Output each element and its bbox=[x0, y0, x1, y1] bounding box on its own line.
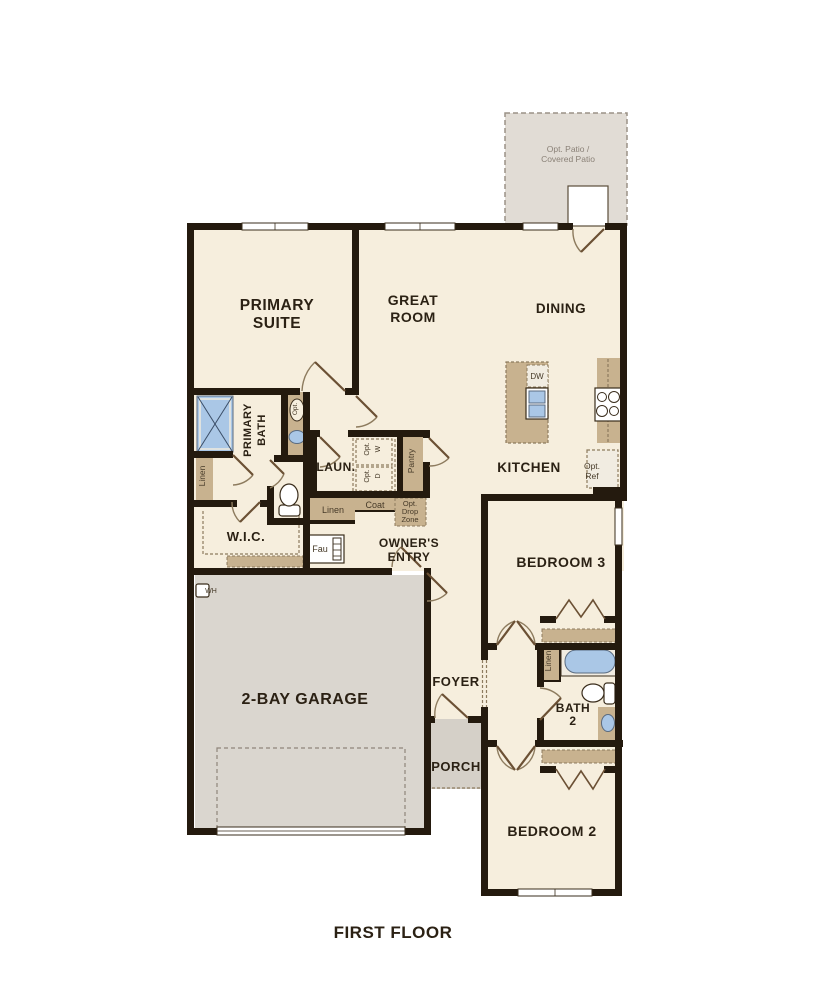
patio-floor bbox=[505, 113, 627, 225]
plan-title: FIRST FLOOR bbox=[334, 923, 453, 942]
bedroom2-label: BEDROOM 2 bbox=[507, 823, 596, 839]
linen-primary-label: Linen bbox=[197, 465, 207, 486]
wall-wing-top bbox=[481, 494, 627, 501]
opt-w-label-2: W bbox=[375, 445, 382, 452]
patio-step bbox=[568, 186, 608, 226]
pantry-label: Pantry bbox=[406, 448, 416, 473]
wic-label: W.I.C. bbox=[227, 529, 265, 544]
dining-label: DINING bbox=[536, 301, 586, 316]
opt-ref-label-1: Opt. bbox=[584, 461, 600, 471]
wall-closet3-front-b bbox=[604, 616, 619, 623]
wall-suite-divider bbox=[352, 223, 359, 395]
bedroom2-closet-shelf bbox=[542, 750, 618, 763]
opt-ref-label-2: Ref bbox=[585, 471, 599, 481]
wall-wing-bottom-b bbox=[592, 889, 622, 896]
wall-wc-right bbox=[303, 392, 310, 525]
opt-vanity-label: Opt. bbox=[292, 403, 299, 415]
wall-below-shower bbox=[187, 451, 233, 458]
wall-wing-right-a bbox=[615, 501, 622, 508]
foyer-label: FOYER bbox=[432, 674, 479, 689]
dw-label: DW bbox=[530, 372, 544, 381]
wall-b3-south-b bbox=[535, 643, 619, 650]
wall-garage-right bbox=[424, 568, 431, 835]
wall-closet3-front-a bbox=[540, 616, 556, 623]
wall-wing-left-a bbox=[481, 494, 488, 660]
tub bbox=[565, 650, 615, 673]
wall-bath2-b2-a bbox=[481, 740, 497, 747]
bath2-toilet-bowl bbox=[582, 684, 604, 702]
porch-label: PORCH bbox=[431, 759, 480, 774]
wall-left bbox=[187, 223, 194, 835]
wall-wing-bottom-a bbox=[481, 889, 518, 896]
kitchen-sink-a bbox=[529, 391, 545, 403]
opt-d-label-1: Opt. bbox=[364, 469, 371, 482]
wall-foyer-bottom-a bbox=[427, 716, 435, 723]
owners-entry-label-2: ENTRY bbox=[388, 550, 431, 564]
wall-garage-top bbox=[187, 568, 392, 575]
wall-closet2-front-a bbox=[540, 766, 556, 773]
owners-entry-label-1: OWNER'S bbox=[379, 536, 439, 550]
floor-plan-drawing: Opt. Patio / Covered Patio PRIMARY SUITE… bbox=[0, 0, 826, 1000]
wic-shelf bbox=[227, 556, 303, 567]
bedroom3-closet-shelf bbox=[542, 629, 618, 642]
bedroom3-label: BEDROOM 3 bbox=[516, 554, 605, 570]
wall-fau-divider bbox=[303, 518, 310, 575]
kitchen-label: KITCHEN bbox=[497, 460, 561, 475]
drop-zone-label-3: Zone bbox=[401, 515, 418, 524]
wall-garage-bottom-l bbox=[187, 828, 217, 835]
primary-suite-label-2: SUITE bbox=[253, 315, 301, 332]
kitchen-sink-b bbox=[529, 405, 545, 417]
bath2-label-1: BATH bbox=[556, 701, 590, 715]
wall-wing-left-b bbox=[481, 707, 488, 896]
wall-pantry-right-b bbox=[423, 462, 430, 498]
wall-laundry-bottom bbox=[310, 491, 428, 498]
primary-bath-label-2: BATH bbox=[256, 414, 268, 446]
wall-top-3 bbox=[455, 223, 523, 230]
window-dining bbox=[523, 223, 558, 230]
fau-label: Fau bbox=[312, 544, 328, 554]
wall-laundry-top-b bbox=[348, 430, 428, 437]
garage-label: 2-BAY GARAGE bbox=[242, 691, 369, 708]
hall-linen-wallline bbox=[310, 520, 355, 524]
laundry-label: LAUN. bbox=[316, 460, 355, 474]
patio-label-2: Covered Patio bbox=[541, 154, 595, 164]
wall-bath2-b2-b bbox=[535, 740, 623, 747]
linen-hall-label: Linen bbox=[322, 505, 344, 515]
wall-wic-top-a bbox=[213, 500, 237, 507]
primary-bath-label-1: PRIMARY bbox=[242, 403, 254, 457]
opt-w-label-1: Opt. bbox=[364, 442, 371, 455]
wall-vanity-left bbox=[281, 392, 288, 455]
wall-pantry-left bbox=[397, 436, 403, 491]
wall-below-linen bbox=[187, 500, 213, 507]
wall-right-upper bbox=[620, 223, 627, 494]
wall-closet2-front-b bbox=[604, 766, 619, 773]
bath2-toilet-tank bbox=[604, 683, 615, 704]
great-room-label-1: GREAT bbox=[388, 292, 438, 308]
window-bedroom3 bbox=[615, 508, 622, 545]
wall-top-1 bbox=[187, 223, 242, 230]
wall-top-2 bbox=[308, 223, 385, 230]
foyer-floor bbox=[427, 571, 485, 719]
wall-top-4 bbox=[558, 223, 573, 230]
coat-label: Coat bbox=[365, 500, 385, 510]
wall-b3-south-a bbox=[481, 643, 497, 650]
primary-toilet-tank bbox=[279, 505, 300, 516]
primary-toilet-bowl bbox=[280, 484, 298, 506]
wh-label: WH bbox=[205, 588, 217, 595]
wall-wing-right-b bbox=[615, 545, 622, 896]
bath2-label-2: 2 bbox=[569, 714, 576, 728]
porch-floor bbox=[427, 719, 485, 789]
wall-foyer-bottom-b bbox=[468, 716, 485, 723]
primary-sink bbox=[289, 431, 305, 444]
great-room-label-2: ROOM bbox=[390, 309, 436, 325]
wall-suite-bottom-stub bbox=[345, 388, 359, 395]
floor-plan-page: Opt. Patio / Covered Patio PRIMARY SUITE… bbox=[0, 0, 826, 1000]
linen-bath2-label: Linen bbox=[543, 650, 553, 671]
bath2-sink bbox=[602, 715, 615, 732]
patio-label-1: Opt. Patio / bbox=[547, 144, 590, 154]
opt-d-label-2: D bbox=[375, 473, 382, 478]
wall-pantry-right-a bbox=[423, 430, 430, 438]
primary-suite-label-1: PRIMARY bbox=[240, 297, 315, 314]
